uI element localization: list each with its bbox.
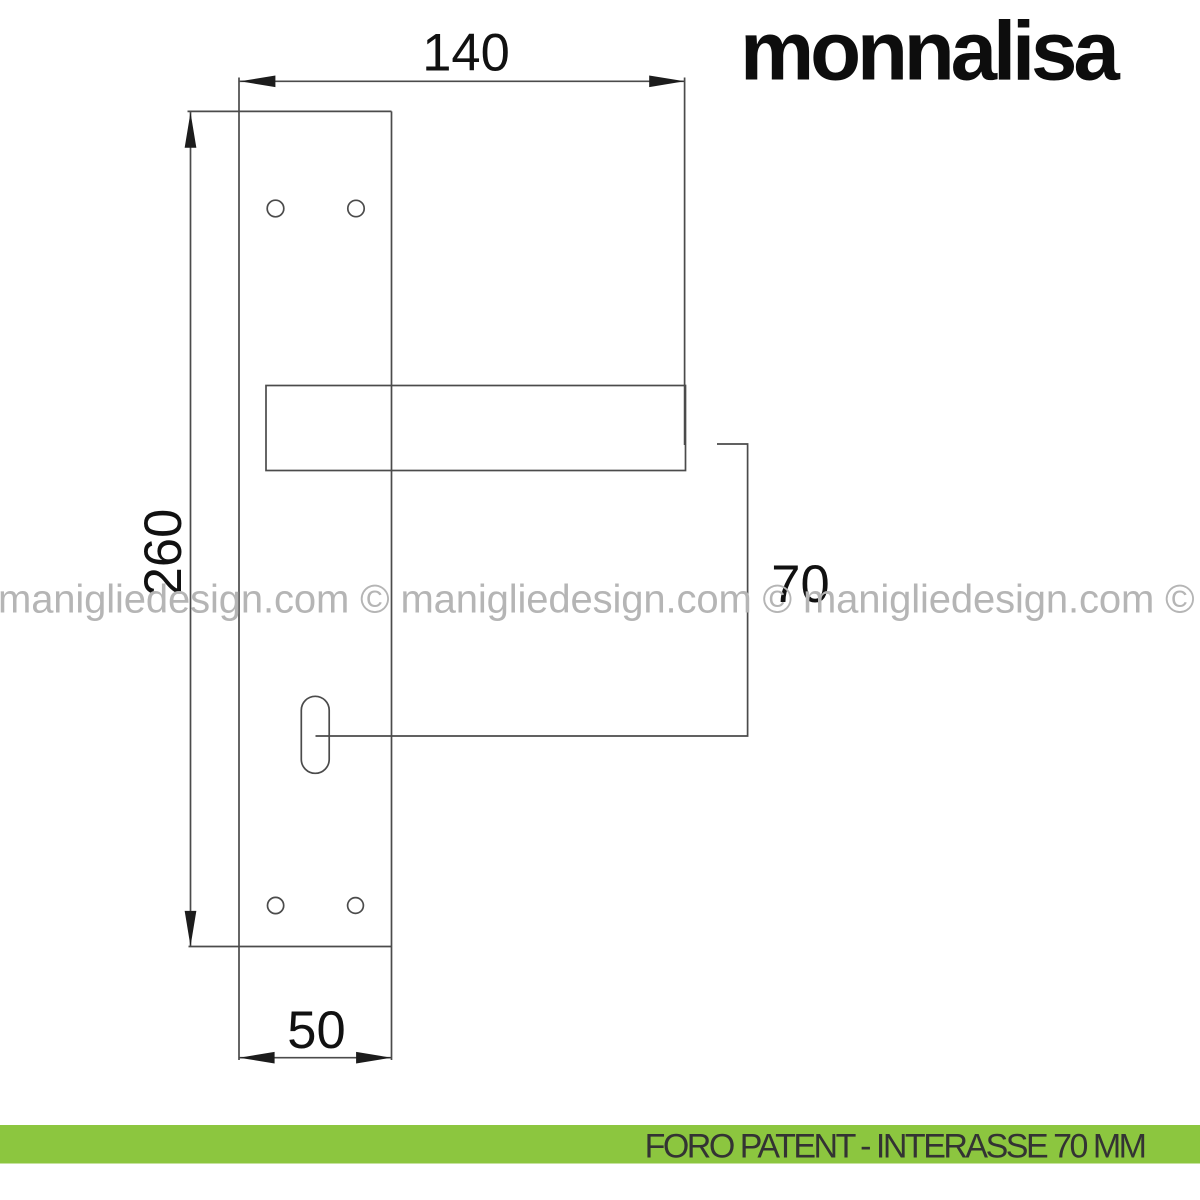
svg-text:FORO PATENT - INTERASSE 70 MM: FORO PATENT - INTERASSE 70 MM [645, 1128, 1145, 1166]
svg-text:140: 140 [422, 24, 510, 83]
svg-text:monnalisa: monnalisa [740, 4, 1120, 98]
svg-text:50: 50 [287, 1001, 345, 1060]
svg-text:manigliedesign.com © maniglied: manigliedesign.com © manigliedesign.com … [0, 578, 1194, 622]
